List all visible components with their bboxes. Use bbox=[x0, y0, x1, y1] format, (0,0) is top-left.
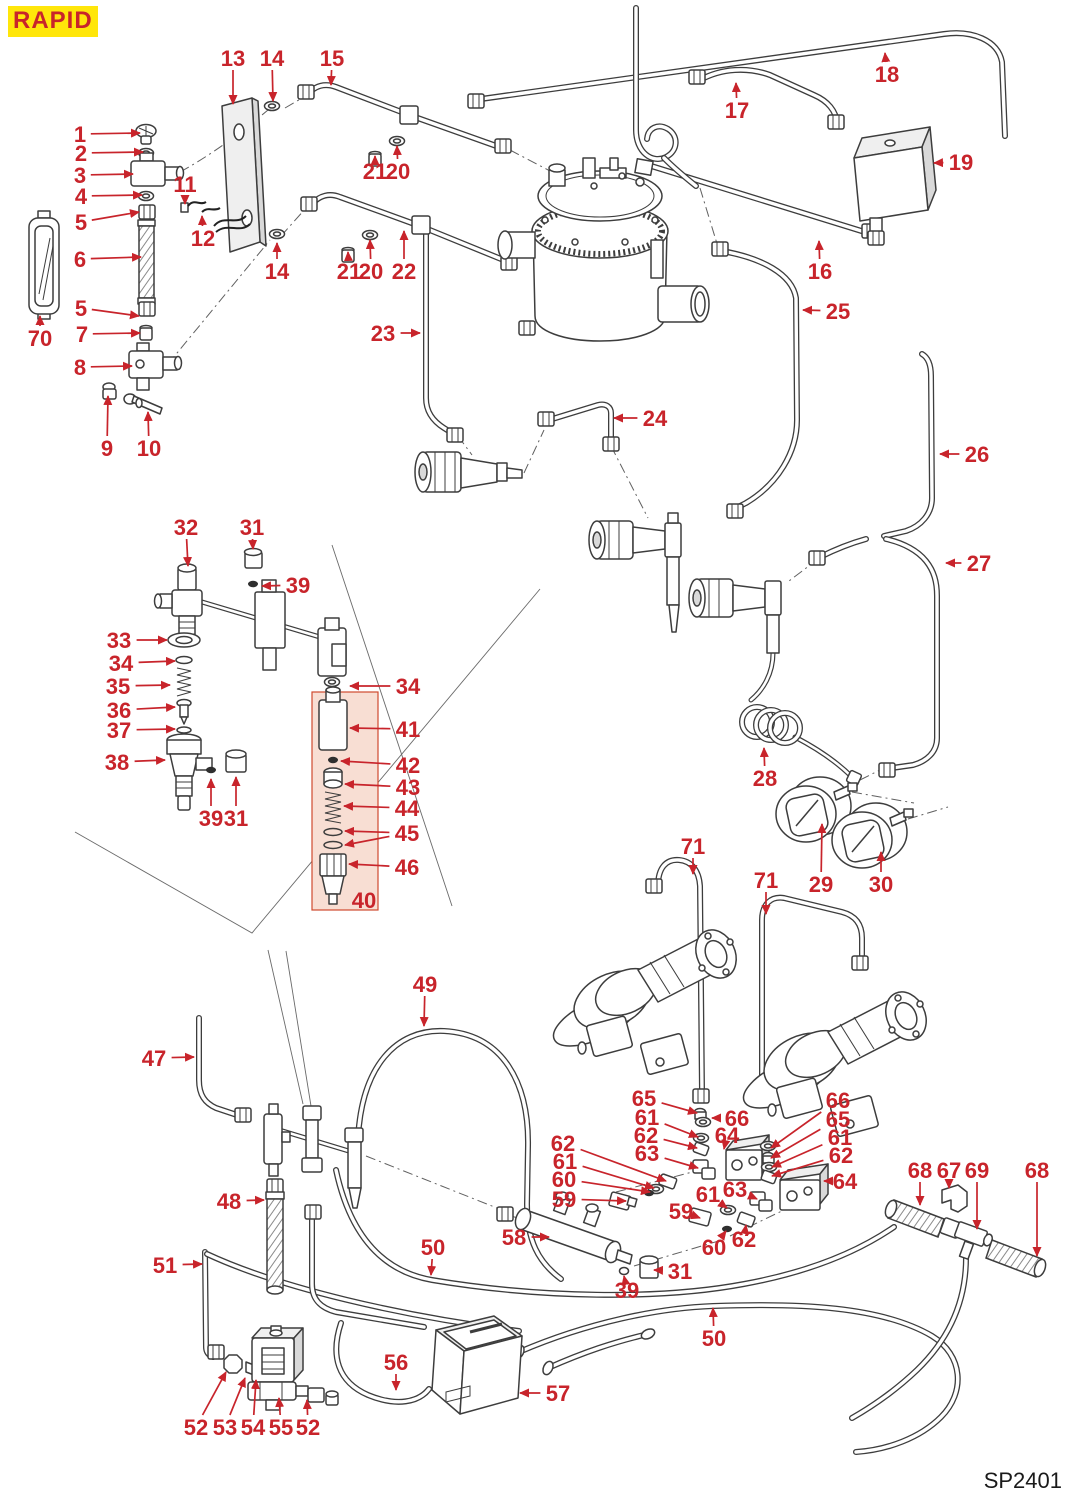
svg-text:53: 53 bbox=[213, 1415, 237, 1440]
svg-text:11: 11 bbox=[173, 172, 196, 197]
svg-text:30: 30 bbox=[869, 872, 893, 897]
svg-text:24: 24 bbox=[643, 406, 668, 431]
svg-text:44: 44 bbox=[395, 796, 420, 821]
svg-text:51: 51 bbox=[153, 1253, 177, 1278]
callout-10: 10 bbox=[137, 412, 161, 461]
svg-text:19: 19 bbox=[949, 150, 973, 175]
callout-70: 70 bbox=[28, 316, 52, 351]
svg-text:14: 14 bbox=[265, 259, 290, 284]
svg-text:12: 12 bbox=[191, 226, 215, 251]
callout-20: 20 bbox=[386, 146, 410, 184]
svg-text:7: 7 bbox=[76, 322, 88, 347]
callout-9: 9 bbox=[101, 396, 113, 461]
callout-57: 57 bbox=[520, 1381, 570, 1406]
svg-text:34: 34 bbox=[109, 651, 134, 676]
sight-glass bbox=[29, 211, 59, 319]
callout-12: 12 bbox=[191, 216, 215, 251]
svg-text:14: 14 bbox=[260, 46, 285, 71]
svg-text:26: 26 bbox=[965, 442, 989, 467]
svg-text:46: 46 bbox=[395, 855, 419, 880]
callout-25: 25 bbox=[803, 299, 850, 324]
callout-68: 68 bbox=[1025, 1158, 1049, 1256]
callout-4: 4 bbox=[75, 184, 142, 209]
callout-47: 47 bbox=[142, 1046, 194, 1071]
svg-text:39: 39 bbox=[199, 806, 223, 831]
fitting-column bbox=[103, 125, 184, 415]
svg-text:49: 49 bbox=[413, 972, 437, 997]
valve-kit-highlight bbox=[312, 687, 378, 910]
callout-15: 15 bbox=[320, 46, 344, 85]
callout-50: 50 bbox=[702, 1308, 726, 1351]
svg-text:31: 31 bbox=[240, 515, 264, 540]
callout-51: 51 bbox=[153, 1253, 202, 1278]
svg-text:23: 23 bbox=[371, 321, 395, 346]
callout-32: 32 bbox=[174, 515, 198, 566]
callout-68: 68 bbox=[908, 1158, 932, 1205]
electronics-box bbox=[432, 1316, 522, 1414]
exploded-parts-diagram: 1234567057891011121314151421202120222324… bbox=[0, 0, 1073, 1500]
svg-text:39: 39 bbox=[286, 573, 310, 598]
svg-text:62: 62 bbox=[732, 1227, 756, 1252]
solenoid-valve bbox=[224, 1326, 338, 1410]
callout-40: 40 bbox=[352, 888, 376, 913]
svg-text:40: 40 bbox=[352, 888, 376, 913]
svg-text:70: 70 bbox=[28, 326, 52, 351]
svg-text:8: 8 bbox=[74, 355, 86, 380]
svg-text:21: 21 bbox=[363, 159, 387, 184]
hose-clip bbox=[942, 1185, 967, 1212]
svg-text:56: 56 bbox=[384, 1350, 408, 1375]
svg-text:71: 71 bbox=[681, 834, 705, 859]
brand-text: RAPID bbox=[13, 7, 93, 34]
svg-text:68: 68 bbox=[1025, 1158, 1049, 1183]
callout-69: 69 bbox=[965, 1158, 989, 1229]
callout-39: 39 bbox=[199, 779, 223, 831]
callout-31: 31 bbox=[654, 1259, 692, 1284]
callout-39: 39 bbox=[615, 1276, 639, 1303]
callout-49: 49 bbox=[413, 972, 437, 1026]
leader-lines bbox=[75, 545, 540, 1106]
svg-text:4: 4 bbox=[75, 184, 88, 209]
callout-37: 37 bbox=[107, 718, 175, 743]
svg-text:17: 17 bbox=[725, 98, 749, 123]
svg-text:10: 10 bbox=[137, 436, 161, 461]
callout-64: 64 bbox=[715, 1123, 740, 1149]
svg-text:71: 71 bbox=[754, 868, 778, 893]
svg-text:62: 62 bbox=[551, 1131, 575, 1156]
callout-21: 21 bbox=[363, 156, 387, 184]
svg-text:39: 39 bbox=[615, 1278, 639, 1303]
svg-text:21: 21 bbox=[337, 259, 361, 284]
svg-text:50: 50 bbox=[702, 1326, 726, 1351]
svg-text:64: 64 bbox=[833, 1169, 858, 1194]
svg-text:61: 61 bbox=[696, 1182, 720, 1207]
svg-text:59: 59 bbox=[669, 1199, 693, 1224]
svg-text:60: 60 bbox=[702, 1235, 726, 1260]
svg-text:13: 13 bbox=[221, 46, 245, 71]
svg-text:28: 28 bbox=[753, 766, 777, 791]
svg-text:64: 64 bbox=[715, 1123, 740, 1148]
callout-22: 22 bbox=[392, 231, 416, 284]
svg-text:63: 63 bbox=[723, 1177, 747, 1202]
callout-16: 16 bbox=[808, 241, 832, 284]
svg-text:38: 38 bbox=[105, 750, 129, 775]
callout-60: 60 bbox=[702, 1231, 726, 1260]
svg-text:20: 20 bbox=[386, 159, 410, 184]
callout-27: 27 bbox=[946, 551, 991, 576]
callout-20: 20 bbox=[359, 240, 383, 284]
svg-text:48: 48 bbox=[217, 1189, 241, 1214]
callout-18: 18 bbox=[875, 53, 899, 87]
callout-19: 19 bbox=[934, 150, 973, 175]
callout-34: 34 bbox=[109, 651, 175, 676]
svg-text:31: 31 bbox=[668, 1259, 692, 1284]
svg-text:50: 50 bbox=[421, 1235, 445, 1260]
svg-text:16: 16 bbox=[808, 259, 832, 284]
svg-text:27: 27 bbox=[967, 551, 991, 576]
callout-56: 56 bbox=[384, 1350, 408, 1390]
callout-6: 6 bbox=[74, 247, 141, 272]
callout-5: 5 bbox=[75, 210, 139, 235]
water-inlet-valve bbox=[415, 452, 522, 492]
svg-text:63: 63 bbox=[635, 1141, 659, 1166]
callout-64: 64 bbox=[824, 1169, 858, 1194]
callout-14: 14 bbox=[265, 243, 290, 284]
callout-17: 17 bbox=[725, 83, 749, 123]
svg-text:33: 33 bbox=[107, 628, 131, 653]
svg-text:67: 67 bbox=[937, 1158, 961, 1183]
callout-23: 23 bbox=[371, 321, 420, 346]
svg-text:54: 54 bbox=[241, 1415, 266, 1440]
callout-11: 11 bbox=[173, 172, 196, 204]
callout-7: 7 bbox=[76, 322, 140, 347]
svg-text:5: 5 bbox=[75, 296, 87, 321]
callout-71: 71 bbox=[681, 834, 705, 874]
callout-31: 31 bbox=[240, 515, 264, 549]
plate-code: SP2401 bbox=[984, 1468, 1062, 1493]
valve-with-coil bbox=[689, 579, 862, 786]
callout-48: 48 bbox=[217, 1189, 264, 1214]
boiler bbox=[498, 158, 709, 341]
callout-5: 5 bbox=[75, 296, 139, 321]
callout-67: 67 bbox=[937, 1158, 961, 1188]
callout-13: 13 bbox=[221, 46, 245, 104]
svg-text:29: 29 bbox=[809, 872, 833, 897]
callout-24: 24 bbox=[614, 406, 668, 431]
svg-text:18: 18 bbox=[875, 62, 899, 87]
svg-text:20: 20 bbox=[359, 259, 383, 284]
group-head-valve-left bbox=[546, 923, 744, 1075]
svg-text:55: 55 bbox=[269, 1415, 293, 1440]
parts-diagram-page: 1234567057891011121314151421202120222324… bbox=[0, 0, 1073, 1500]
svg-text:41: 41 bbox=[396, 717, 420, 742]
callout-26: 26 bbox=[940, 442, 989, 467]
svg-text:32: 32 bbox=[174, 515, 198, 540]
svg-text:5: 5 bbox=[75, 210, 87, 235]
valve-with-injector bbox=[589, 513, 681, 632]
svg-text:15: 15 bbox=[320, 46, 344, 71]
svg-text:57: 57 bbox=[546, 1381, 570, 1406]
svg-text:52: 52 bbox=[184, 1415, 208, 1440]
svg-text:47: 47 bbox=[142, 1046, 166, 1071]
callout-62: 62 bbox=[732, 1225, 756, 1252]
svg-text:25: 25 bbox=[826, 299, 850, 324]
callout-21: 21 bbox=[337, 252, 361, 284]
callout-14: 14 bbox=[260, 46, 285, 101]
svg-text:37: 37 bbox=[107, 718, 131, 743]
svg-text:9: 9 bbox=[101, 436, 113, 461]
svg-text:6: 6 bbox=[74, 247, 86, 272]
svg-text:22: 22 bbox=[392, 259, 416, 284]
svg-text:62: 62 bbox=[829, 1143, 853, 1168]
brand-badge: RAPID bbox=[8, 6, 98, 37]
callout-31: 31 bbox=[224, 777, 248, 831]
svg-text:58: 58 bbox=[502, 1225, 526, 1250]
svg-text:69: 69 bbox=[965, 1158, 989, 1183]
svg-text:45: 45 bbox=[395, 821, 419, 846]
callout-71: 71 bbox=[754, 868, 778, 914]
callout-28: 28 bbox=[753, 748, 777, 791]
callout-38: 38 bbox=[105, 750, 165, 775]
callout-35: 35 bbox=[106, 674, 170, 699]
svg-text:34: 34 bbox=[396, 674, 421, 699]
svg-text:35: 35 bbox=[106, 674, 130, 699]
callout-50: 50 bbox=[421, 1235, 445, 1275]
svg-text:31: 31 bbox=[224, 806, 248, 831]
svg-text:68: 68 bbox=[908, 1158, 932, 1183]
callout-33: 33 bbox=[107, 628, 167, 653]
svg-text:52: 52 bbox=[296, 1415, 320, 1440]
callout-52: 52 bbox=[296, 1400, 320, 1440]
callout-8: 8 bbox=[74, 355, 132, 380]
